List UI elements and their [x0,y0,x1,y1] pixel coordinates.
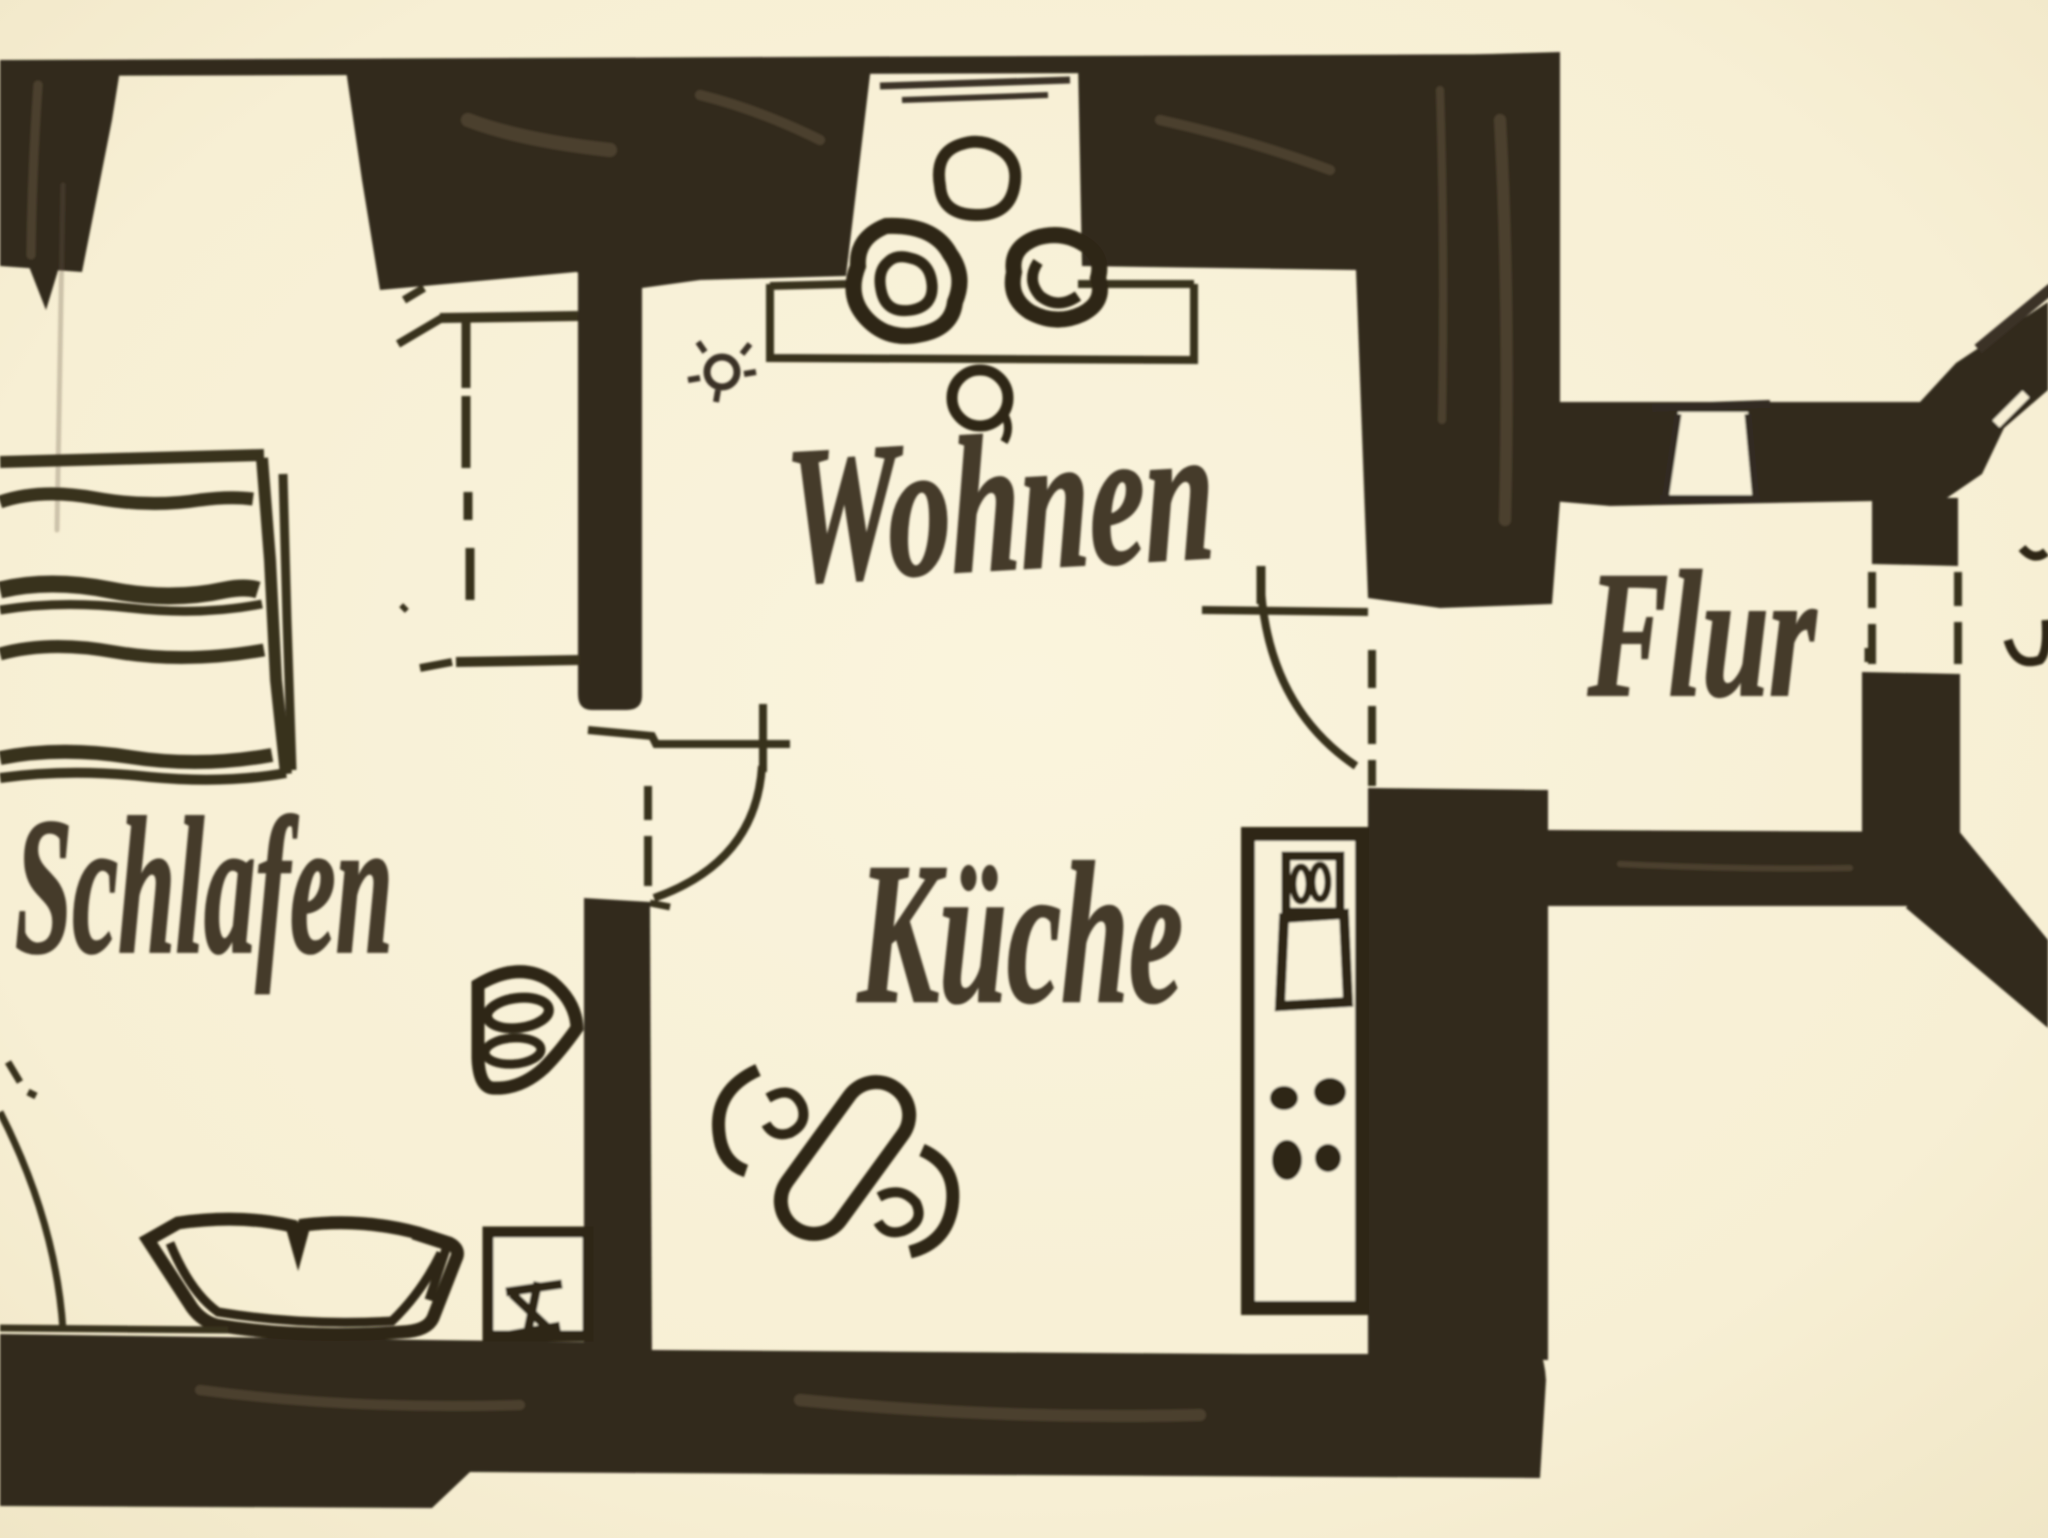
svg-text:Wohnen: Wohnen [783,384,1218,624]
svg-text:Küche: Küche [857,822,1183,1045]
svg-text:Flur: Flur [1587,534,1817,734]
svg-text:Schlafen: Schlafen [15,778,393,994]
